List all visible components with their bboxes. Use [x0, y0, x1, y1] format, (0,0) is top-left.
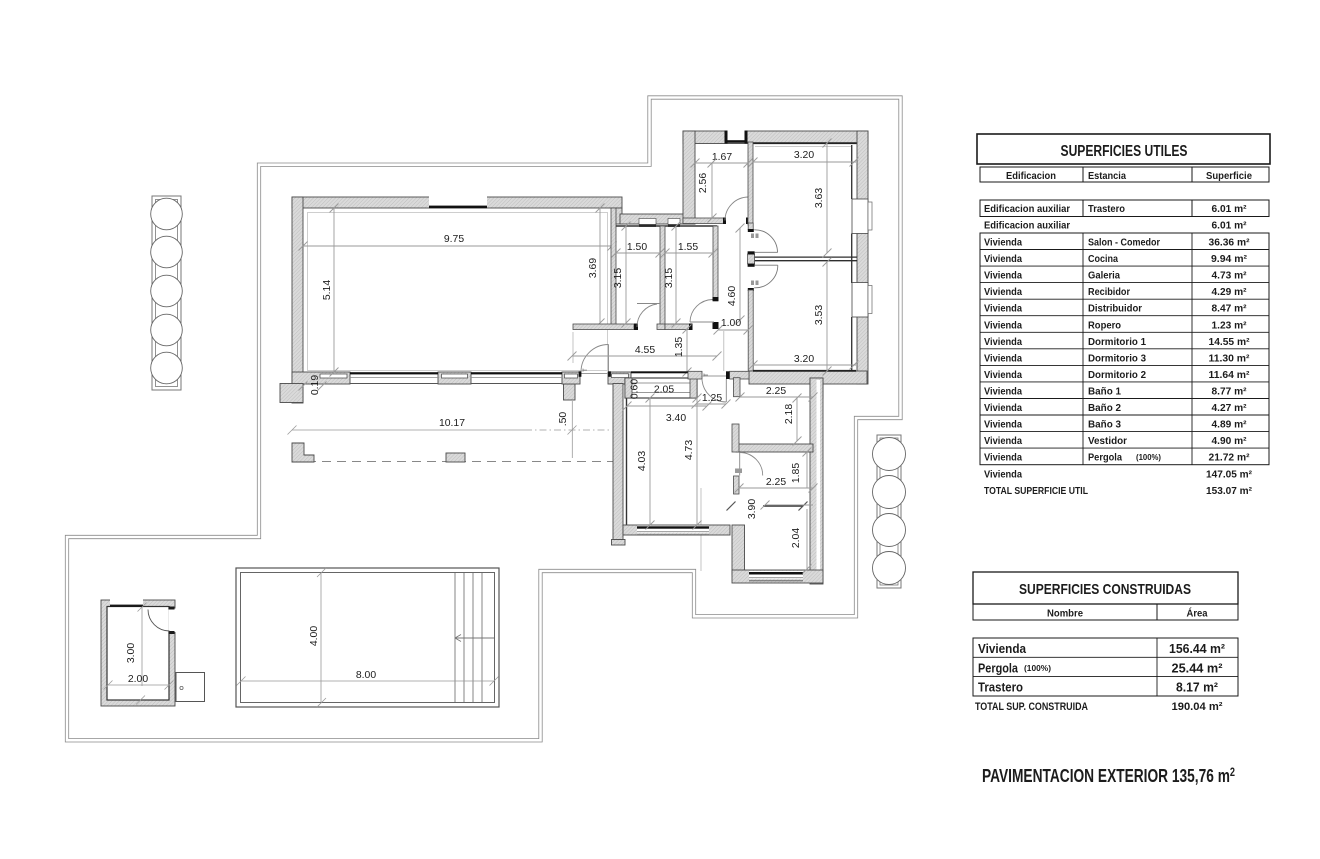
svg-text:8.17 m²: 8.17 m²	[1176, 681, 1218, 695]
svg-text:1.25: 1.25	[702, 393, 722, 404]
svg-text:3.40: 3.40	[666, 413, 686, 424]
svg-text:25.44 m²: 25.44 m²	[1172, 661, 1223, 675]
svg-text:21.72 m²: 21.72 m²	[1209, 452, 1250, 464]
svg-text:10.17: 10.17	[439, 418, 465, 429]
svg-text:5.14: 5.14	[322, 280, 333, 300]
svg-text:2.18: 2.18	[784, 404, 795, 424]
svg-text:2.25: 2.25	[766, 477, 786, 488]
svg-text:Vivienda: Vivienda	[984, 237, 1022, 249]
svg-text:Recibidor: Recibidor	[1088, 286, 1130, 298]
svg-text:Salon - Comedor: Salon - Comedor	[1088, 237, 1160, 249]
svg-text:36.36 m²: 36.36 m²	[1209, 237, 1250, 249]
svg-text:Vivienda: Vivienda	[984, 352, 1022, 364]
svg-text:PAVIMENTACION EXTERIOR 135,76: PAVIMENTACION EXTERIOR 135,76 m2	[982, 765, 1235, 786]
svg-text:190.04 m²: 190.04 m²	[1172, 701, 1223, 713]
svg-text:3.00: 3.00	[126, 643, 137, 663]
svg-text:9.94 m²: 9.94 m²	[1211, 253, 1247, 265]
svg-text:Vivienda: Vivienda	[978, 642, 1027, 656]
svg-text:1.35: 1.35	[674, 337, 685, 357]
svg-text:TOTAL SUPERFICIE UTIL: TOTAL SUPERFICIE UTIL	[984, 485, 1088, 497]
svg-text:Baño 1: Baño 1	[1088, 386, 1121, 398]
svg-text:4.29 m²: 4.29 m²	[1212, 286, 1247, 298]
svg-text:TOTAL SUP. CONSTRUIDA: TOTAL SUP. CONSTRUIDA	[975, 701, 1088, 713]
svg-text:SUPERFICIES UTILES: SUPERFICIES UTILES	[1061, 143, 1188, 160]
svg-text:Vivienda: Vivienda	[984, 319, 1022, 331]
svg-text:147.05 m²: 147.05 m²	[1206, 469, 1252, 481]
svg-text:2.00: 2.00	[128, 674, 148, 685]
svg-text:Vivienda: Vivienda	[984, 452, 1022, 464]
svg-text:1.00: 1.00	[721, 318, 741, 329]
svg-text:3.90: 3.90	[747, 499, 758, 519]
svg-text:Vivienda: Vivienda	[984, 270, 1022, 282]
svg-text:Distribuidor: Distribuidor	[1088, 303, 1142, 315]
svg-text:0.19: 0.19	[310, 375, 321, 395]
svg-text:Superficie: Superficie	[1206, 170, 1252, 182]
svg-text:11.64 m²: 11.64 m²	[1209, 369, 1250, 381]
svg-text:3.53: 3.53	[814, 305, 825, 325]
svg-text:156.44 m²: 156.44 m²	[1169, 642, 1225, 656]
svg-text:4.00: 4.00	[309, 626, 320, 646]
svg-text:Edificacion auxiliar: Edificacion auxiliar	[984, 203, 1070, 215]
svg-text:3.20: 3.20	[794, 150, 814, 161]
svg-text:1.50: 1.50	[627, 242, 647, 253]
svg-text:Dormitorio 1: Dormitorio 1	[1088, 336, 1146, 348]
svg-text:Vivienda: Vivienda	[984, 419, 1022, 431]
svg-text:9.75: 9.75	[444, 234, 464, 245]
svg-text:Estancia: Estancia	[1088, 170, 1126, 182]
svg-text:.50: .50	[558, 412, 569, 427]
svg-text:3.20: 3.20	[794, 354, 814, 365]
svg-text:8.00: 8.00	[356, 670, 376, 681]
svg-text:4.27 m²: 4.27 m²	[1212, 402, 1247, 414]
svg-text:(100%): (100%)	[1024, 663, 1051, 673]
svg-text:3.63: 3.63	[814, 188, 825, 208]
svg-text:1.55: 1.55	[678, 242, 698, 253]
svg-text:8.47 m²: 8.47 m²	[1212, 303, 1247, 315]
svg-text:Ropero: Ropero	[1088, 319, 1121, 331]
svg-text:Vivienda: Vivienda	[984, 369, 1022, 381]
svg-text:Vivienda: Vivienda	[984, 386, 1022, 398]
svg-text:14.55 m²: 14.55 m²	[1209, 336, 1250, 348]
svg-text:Pergola: Pergola	[1088, 452, 1122, 464]
svg-text:1.23 m²: 1.23 m²	[1212, 319, 1247, 331]
svg-text:Baño 3: Baño 3	[1088, 419, 1121, 431]
svg-text:Área: Área	[1187, 607, 1208, 620]
svg-text:Vivienda: Vivienda	[984, 469, 1022, 481]
svg-text:6.01 m²: 6.01 m²	[1212, 203, 1247, 215]
svg-text:Vivienda: Vivienda	[984, 435, 1022, 447]
svg-text:153.07 m²: 153.07 m²	[1206, 485, 1252, 497]
svg-text:2.04: 2.04	[791, 528, 802, 548]
svg-text:2.25: 2.25	[766, 386, 786, 397]
svg-text:1.85: 1.85	[791, 463, 802, 483]
svg-text:11.30 m²: 11.30 m²	[1209, 352, 1250, 364]
svg-text:Dormitorio 2: Dormitorio 2	[1088, 369, 1146, 381]
svg-text:4.73 m²: 4.73 m²	[1212, 270, 1247, 282]
svg-text:3.15: 3.15	[613, 268, 624, 288]
svg-text:Vivienda: Vivienda	[984, 402, 1022, 414]
svg-text:Pergola: Pergola	[978, 661, 1019, 675]
svg-text:4.60: 4.60	[727, 286, 738, 306]
svg-text:4.03: 4.03	[637, 451, 648, 471]
svg-text:Trastero: Trastero	[978, 681, 1023, 695]
svg-text:Trastero: Trastero	[1088, 203, 1125, 215]
svg-text:Edificacion auxiliar: Edificacion auxiliar	[984, 220, 1070, 232]
svg-text:8.77 m²: 8.77 m²	[1212, 386, 1247, 398]
svg-text:(100%): (100%)	[1136, 453, 1161, 462]
svg-text:Baño 2: Baño 2	[1088, 402, 1121, 414]
svg-text:Dormitorio 3: Dormitorio 3	[1088, 352, 1146, 364]
svg-text:Vivienda: Vivienda	[984, 336, 1022, 348]
svg-text:1.67: 1.67	[712, 152, 732, 163]
svg-text:4.73: 4.73	[684, 440, 695, 460]
svg-text:Galeria: Galeria	[1088, 270, 1120, 282]
svg-text:Vivienda: Vivienda	[984, 286, 1022, 298]
svg-text:Edificacion: Edificacion	[1006, 170, 1056, 182]
svg-text:2.56: 2.56	[698, 173, 709, 193]
svg-text:Vestidor: Vestidor	[1088, 435, 1127, 447]
svg-text:Vivienda: Vivienda	[984, 253, 1022, 265]
svg-text:3.15: 3.15	[664, 268, 675, 288]
svg-text:4.89 m²: 4.89 m²	[1212, 419, 1247, 431]
svg-text:Vivienda: Vivienda	[984, 303, 1022, 315]
svg-text:SUPERFICIES CONSTRUIDAS: SUPERFICIES CONSTRUIDAS	[1019, 581, 1191, 598]
svg-text:Cocina: Cocina	[1088, 253, 1118, 265]
svg-text:2.05: 2.05	[654, 385, 674, 396]
svg-text:0.60: 0.60	[630, 379, 641, 399]
svg-text:4.90 m²: 4.90 m²	[1212, 435, 1247, 447]
svg-text:4.55: 4.55	[635, 345, 655, 356]
svg-text:3.69: 3.69	[588, 258, 599, 278]
svg-text:Nombre: Nombre	[1047, 608, 1083, 620]
svg-text:6.01 m²: 6.01 m²	[1212, 220, 1247, 232]
